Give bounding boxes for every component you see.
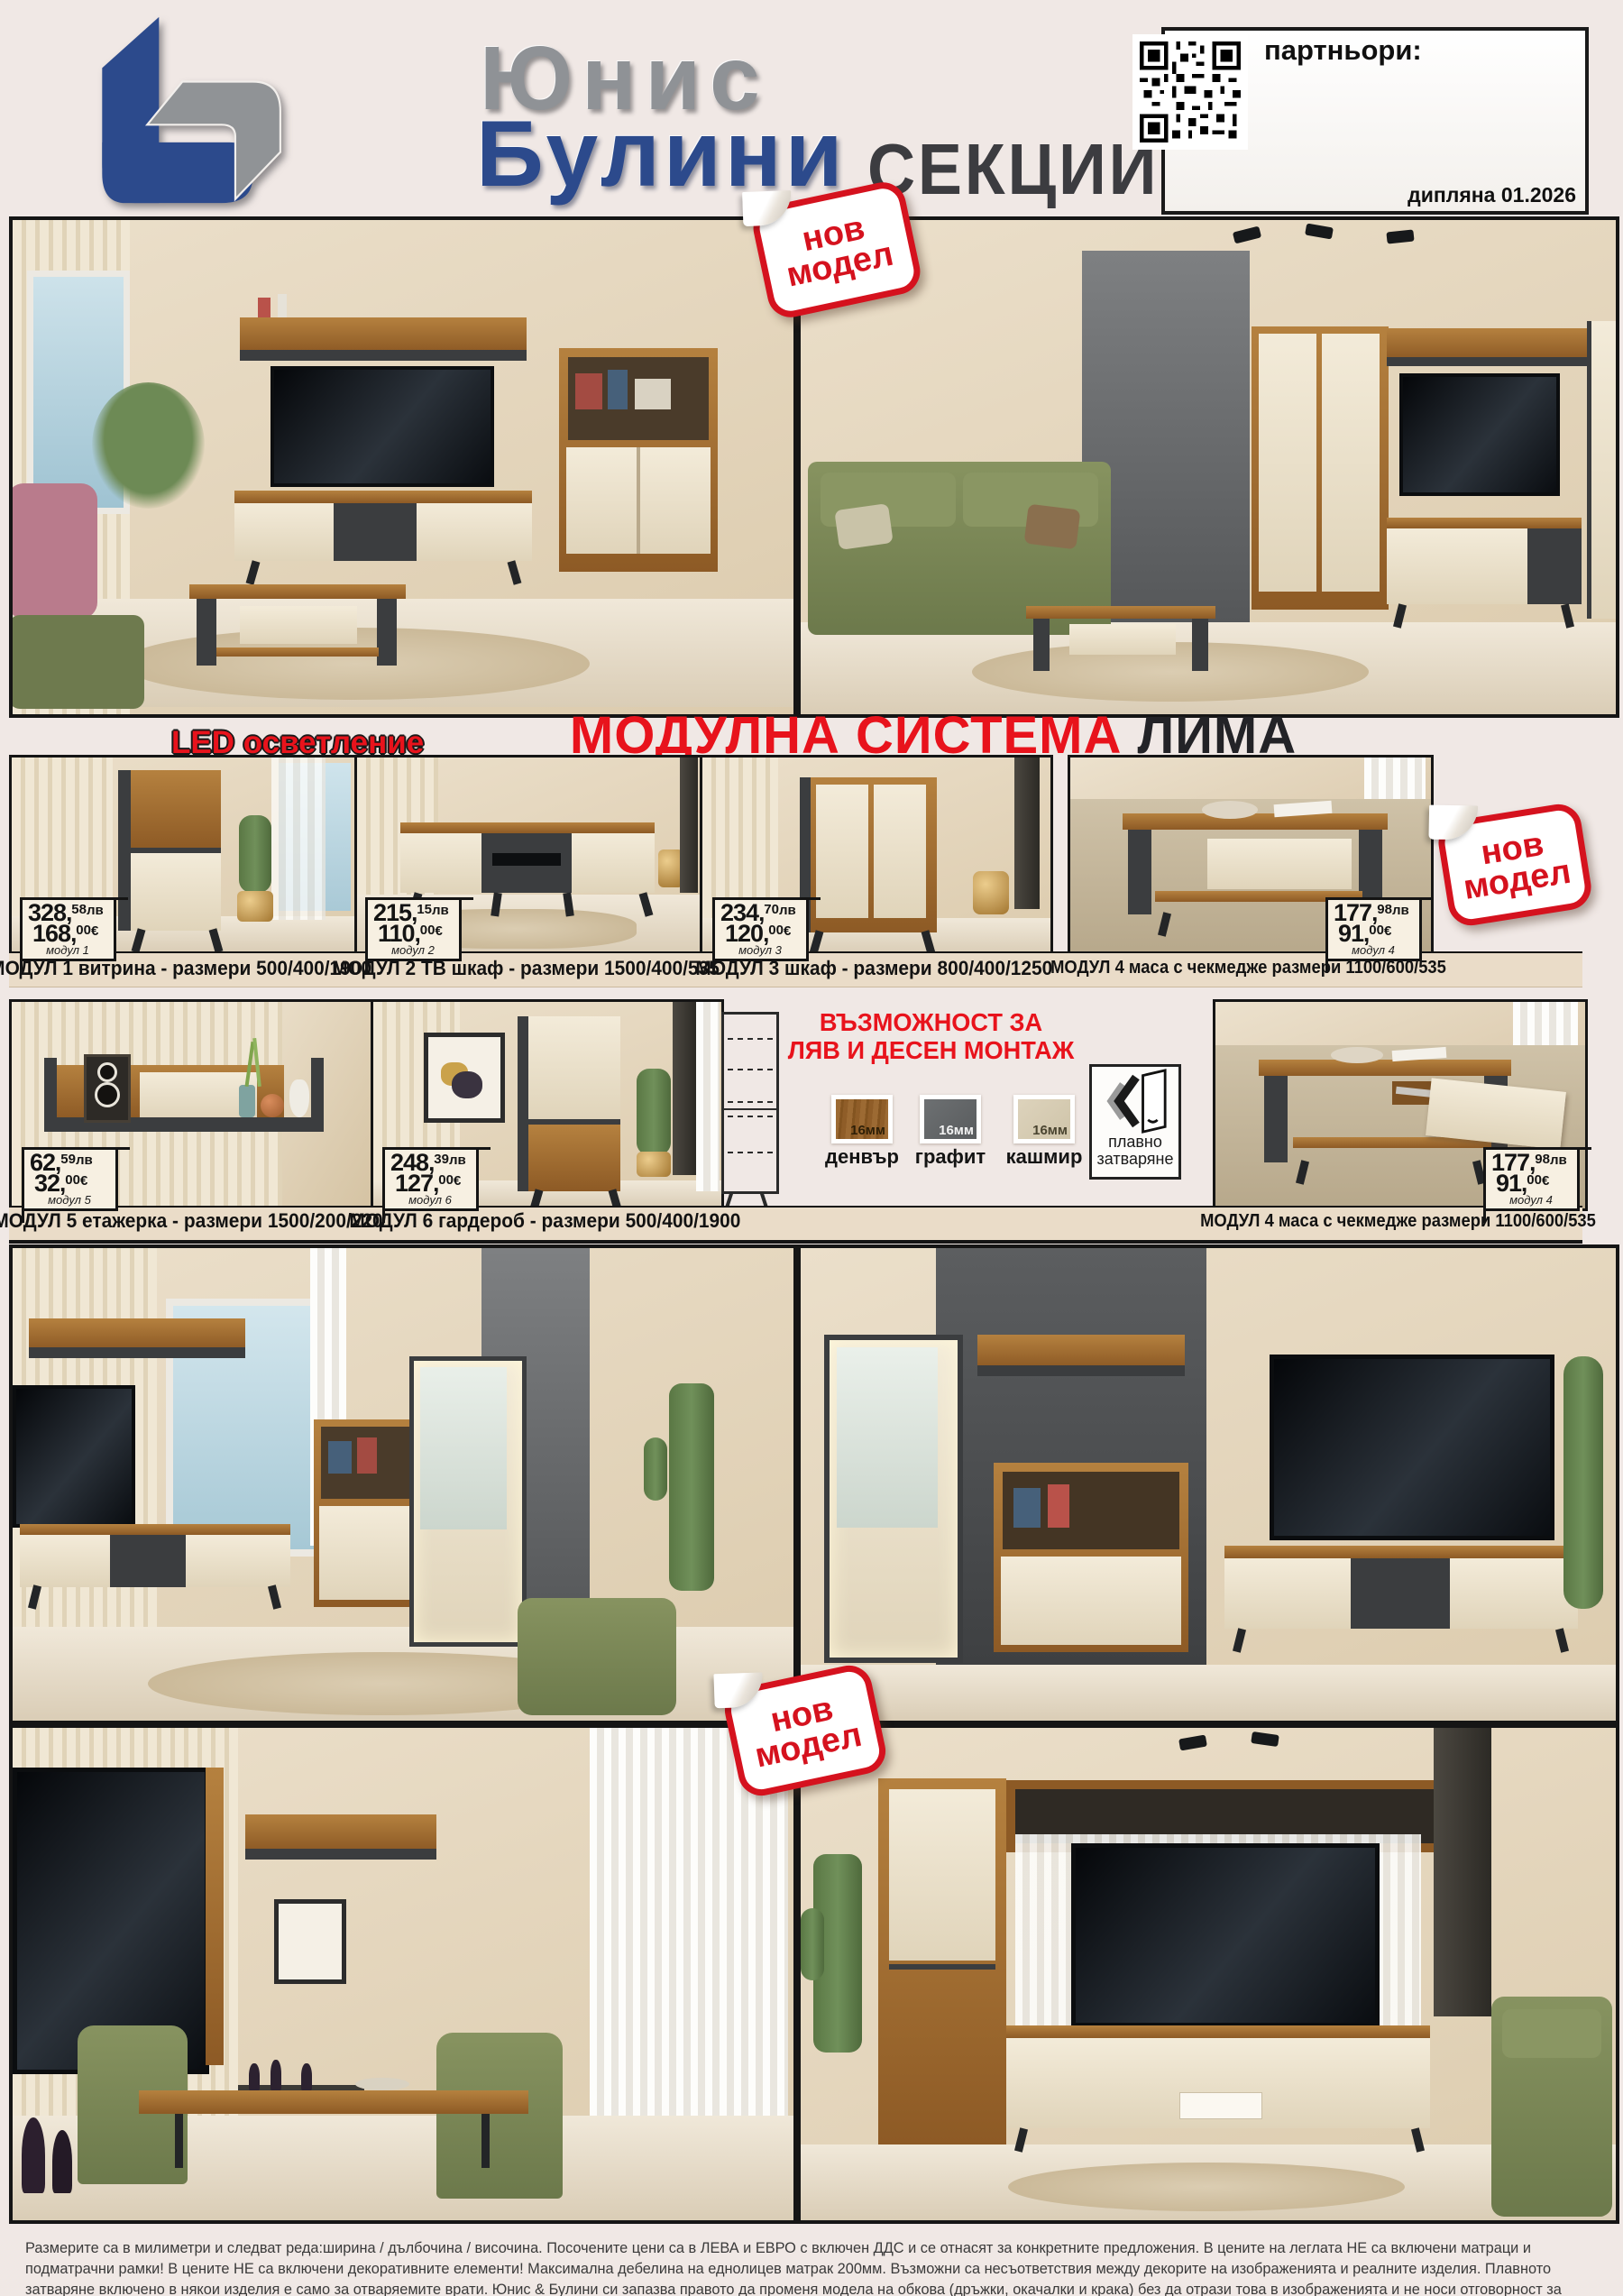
room-photo-bottom-right bbox=[797, 1724, 1619, 2224]
coffee-table bbox=[1026, 606, 1215, 619]
wall-picture bbox=[424, 1033, 505, 1123]
mount-options-block: ВЪЗМОЖНОСТ ЗА ЛЯВ И ДЕСЕН МОНТАЖ 16мм де… bbox=[775, 1008, 1208, 1208]
coffee-table bbox=[189, 584, 406, 599]
soft-close-label: плавно затваряне bbox=[1097, 1134, 1174, 1168]
price-box-module-2: 215,15лв 110,00€ модул 2 bbox=[365, 897, 462, 961]
soft-close-box: плавно затваряне bbox=[1089, 1064, 1181, 1180]
new-model-badge: нов модел bbox=[1435, 801, 1594, 929]
swatch-name: графит bbox=[896, 1145, 1004, 1169]
room-photo-top-left bbox=[9, 216, 797, 718]
partners-box: партньори: дипляна 01.2026 bbox=[1161, 27, 1589, 215]
edition-label: дипляна 01.2026 bbox=[1408, 183, 1576, 207]
wall-shelf bbox=[29, 1318, 245, 1349]
wardrobe-schematic-diagram bbox=[721, 1012, 779, 1194]
tv bbox=[1399, 373, 1560, 496]
wine-glass bbox=[249, 2063, 260, 2090]
tv bbox=[270, 366, 494, 487]
room-photo-bottom-left bbox=[9, 1724, 797, 2224]
qr-code-icon bbox=[1132, 34, 1248, 150]
price-box-module-4b: 177,98лв 91,00€ модул 4 bbox=[1483, 1147, 1580, 1211]
swatch-grafit: 16мм bbox=[920, 1095, 981, 1143]
tv-shelf bbox=[1387, 328, 1589, 359]
cactus-plant bbox=[669, 1383, 714, 1591]
dining-table bbox=[139, 2090, 528, 2114]
price-box-module-5: 62,59лв 32,00€ модул 5 bbox=[22, 1147, 118, 1211]
palm-plant bbox=[1563, 1356, 1603, 1609]
coffee-table bbox=[1123, 813, 1388, 830]
armchair bbox=[518, 1598, 676, 1715]
vase bbox=[239, 1085, 255, 1117]
room-photo-middle-left bbox=[9, 1244, 797, 1724]
tv-stand bbox=[20, 1524, 290, 1535]
swatch-denvur: 16мм bbox=[831, 1095, 893, 1143]
room-photo-top-right bbox=[797, 216, 1619, 718]
soft-close-door-icon bbox=[1096, 1069, 1174, 1134]
tv bbox=[1270, 1355, 1554, 1540]
palm-plant bbox=[92, 382, 205, 509]
wine-glass bbox=[301, 2063, 312, 2090]
leaflet-page: Юнис Булини СЕКЦИИ 1 партньори: дипляна … bbox=[0, 0, 1623, 2296]
ottoman bbox=[9, 615, 144, 709]
tv-cabinet bbox=[400, 822, 655, 833]
vase bbox=[261, 1094, 284, 1117]
tv-stand bbox=[234, 491, 532, 503]
tv-bench bbox=[1224, 1546, 1578, 1558]
rug bbox=[1008, 2163, 1405, 2211]
price-box-module-6: 248,39лв 127,00€ модул 6 bbox=[382, 1147, 479, 1211]
armchair bbox=[9, 483, 97, 619]
price-box-module-1: 328,58лв 168,00€ модул 1 bbox=[20, 897, 116, 961]
room-photo-middle-right bbox=[797, 1244, 1619, 1724]
swatch-kashmir: 16мм bbox=[1013, 1095, 1075, 1143]
wine-glass bbox=[52, 2130, 72, 2193]
wall-picture bbox=[274, 1899, 346, 1984]
tv bbox=[1071, 1843, 1380, 2027]
partners-label: партньори: bbox=[1264, 34, 1422, 67]
mount-options-title: ВЪЗМОЖНОСТ ЗА ЛЯВ И ДЕСЕН МОНТАЖ bbox=[780, 1008, 1082, 1065]
tv bbox=[13, 1385, 135, 1528]
display-cabinet bbox=[1587, 321, 1617, 619]
wardrobe bbox=[518, 1016, 528, 1191]
wall-shelf bbox=[245, 1814, 436, 1851]
vase bbox=[289, 1079, 309, 1117]
price-box-module-3: 234,70лв 120,00€ модул 3 bbox=[712, 897, 809, 961]
wine-glass bbox=[270, 2060, 281, 2090]
cactus-plant bbox=[239, 815, 271, 893]
wall-shelf bbox=[240, 317, 527, 352]
cactus-plant bbox=[637, 1069, 671, 1155]
disclaimer-text: Размерите са в милиметри и следват реда:… bbox=[25, 2238, 1588, 2296]
wall-shelf bbox=[977, 1335, 1185, 1367]
swatch-name: кашмир bbox=[990, 1145, 1098, 1169]
speaker bbox=[84, 1054, 131, 1123]
brand-logo-icon bbox=[83, 7, 286, 213]
plant-pot bbox=[973, 871, 1009, 914]
coffee-table bbox=[1259, 1060, 1511, 1076]
vitrine-cabinet bbox=[118, 770, 131, 931]
wine-glass bbox=[22, 2117, 45, 2193]
sideboard bbox=[1387, 518, 1582, 528]
dining-chair bbox=[436, 2033, 563, 2199]
price-box-module-4: 177,98лв 91,00€ модул 4 bbox=[1325, 897, 1422, 961]
